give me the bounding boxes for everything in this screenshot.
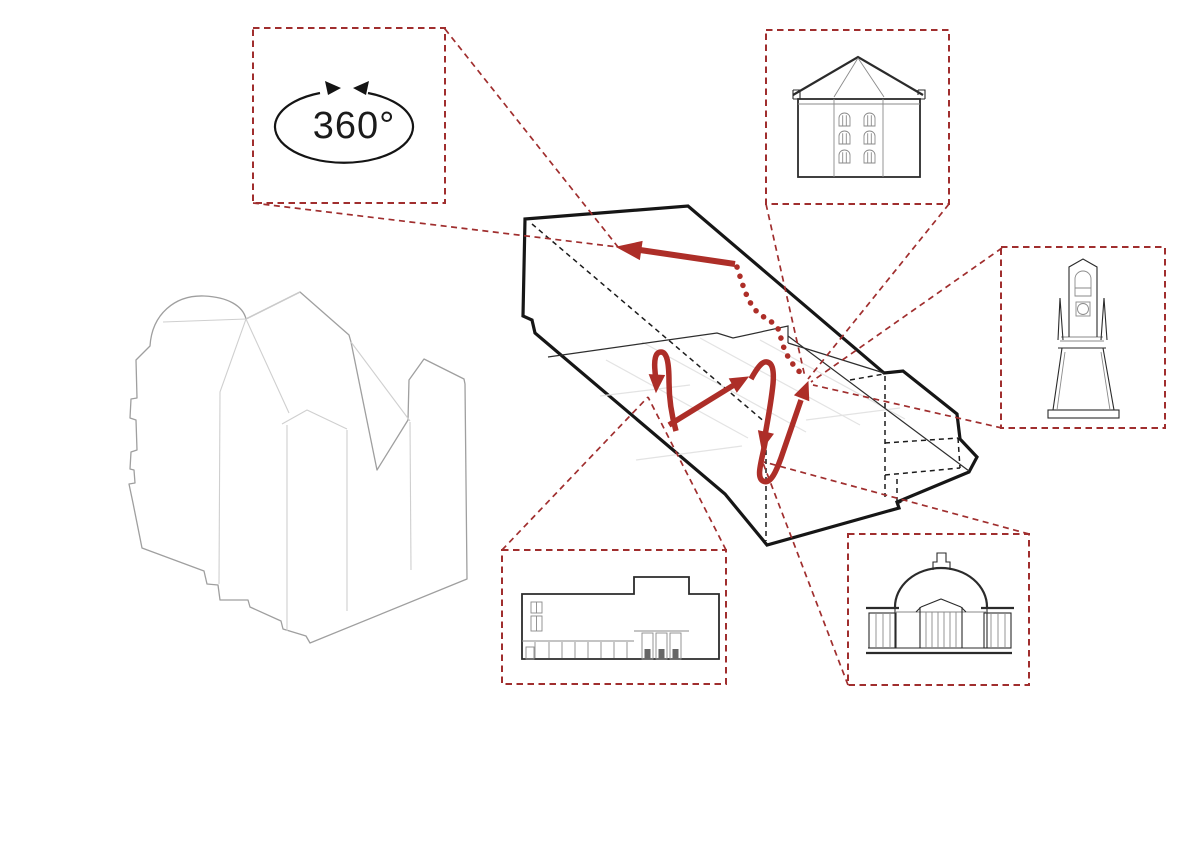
circulation-diagram-canvas: 360°	[0, 0, 1200, 848]
rotation-label: 360°	[313, 105, 396, 147]
diagram-svg: 360°	[0, 0, 1200, 848]
